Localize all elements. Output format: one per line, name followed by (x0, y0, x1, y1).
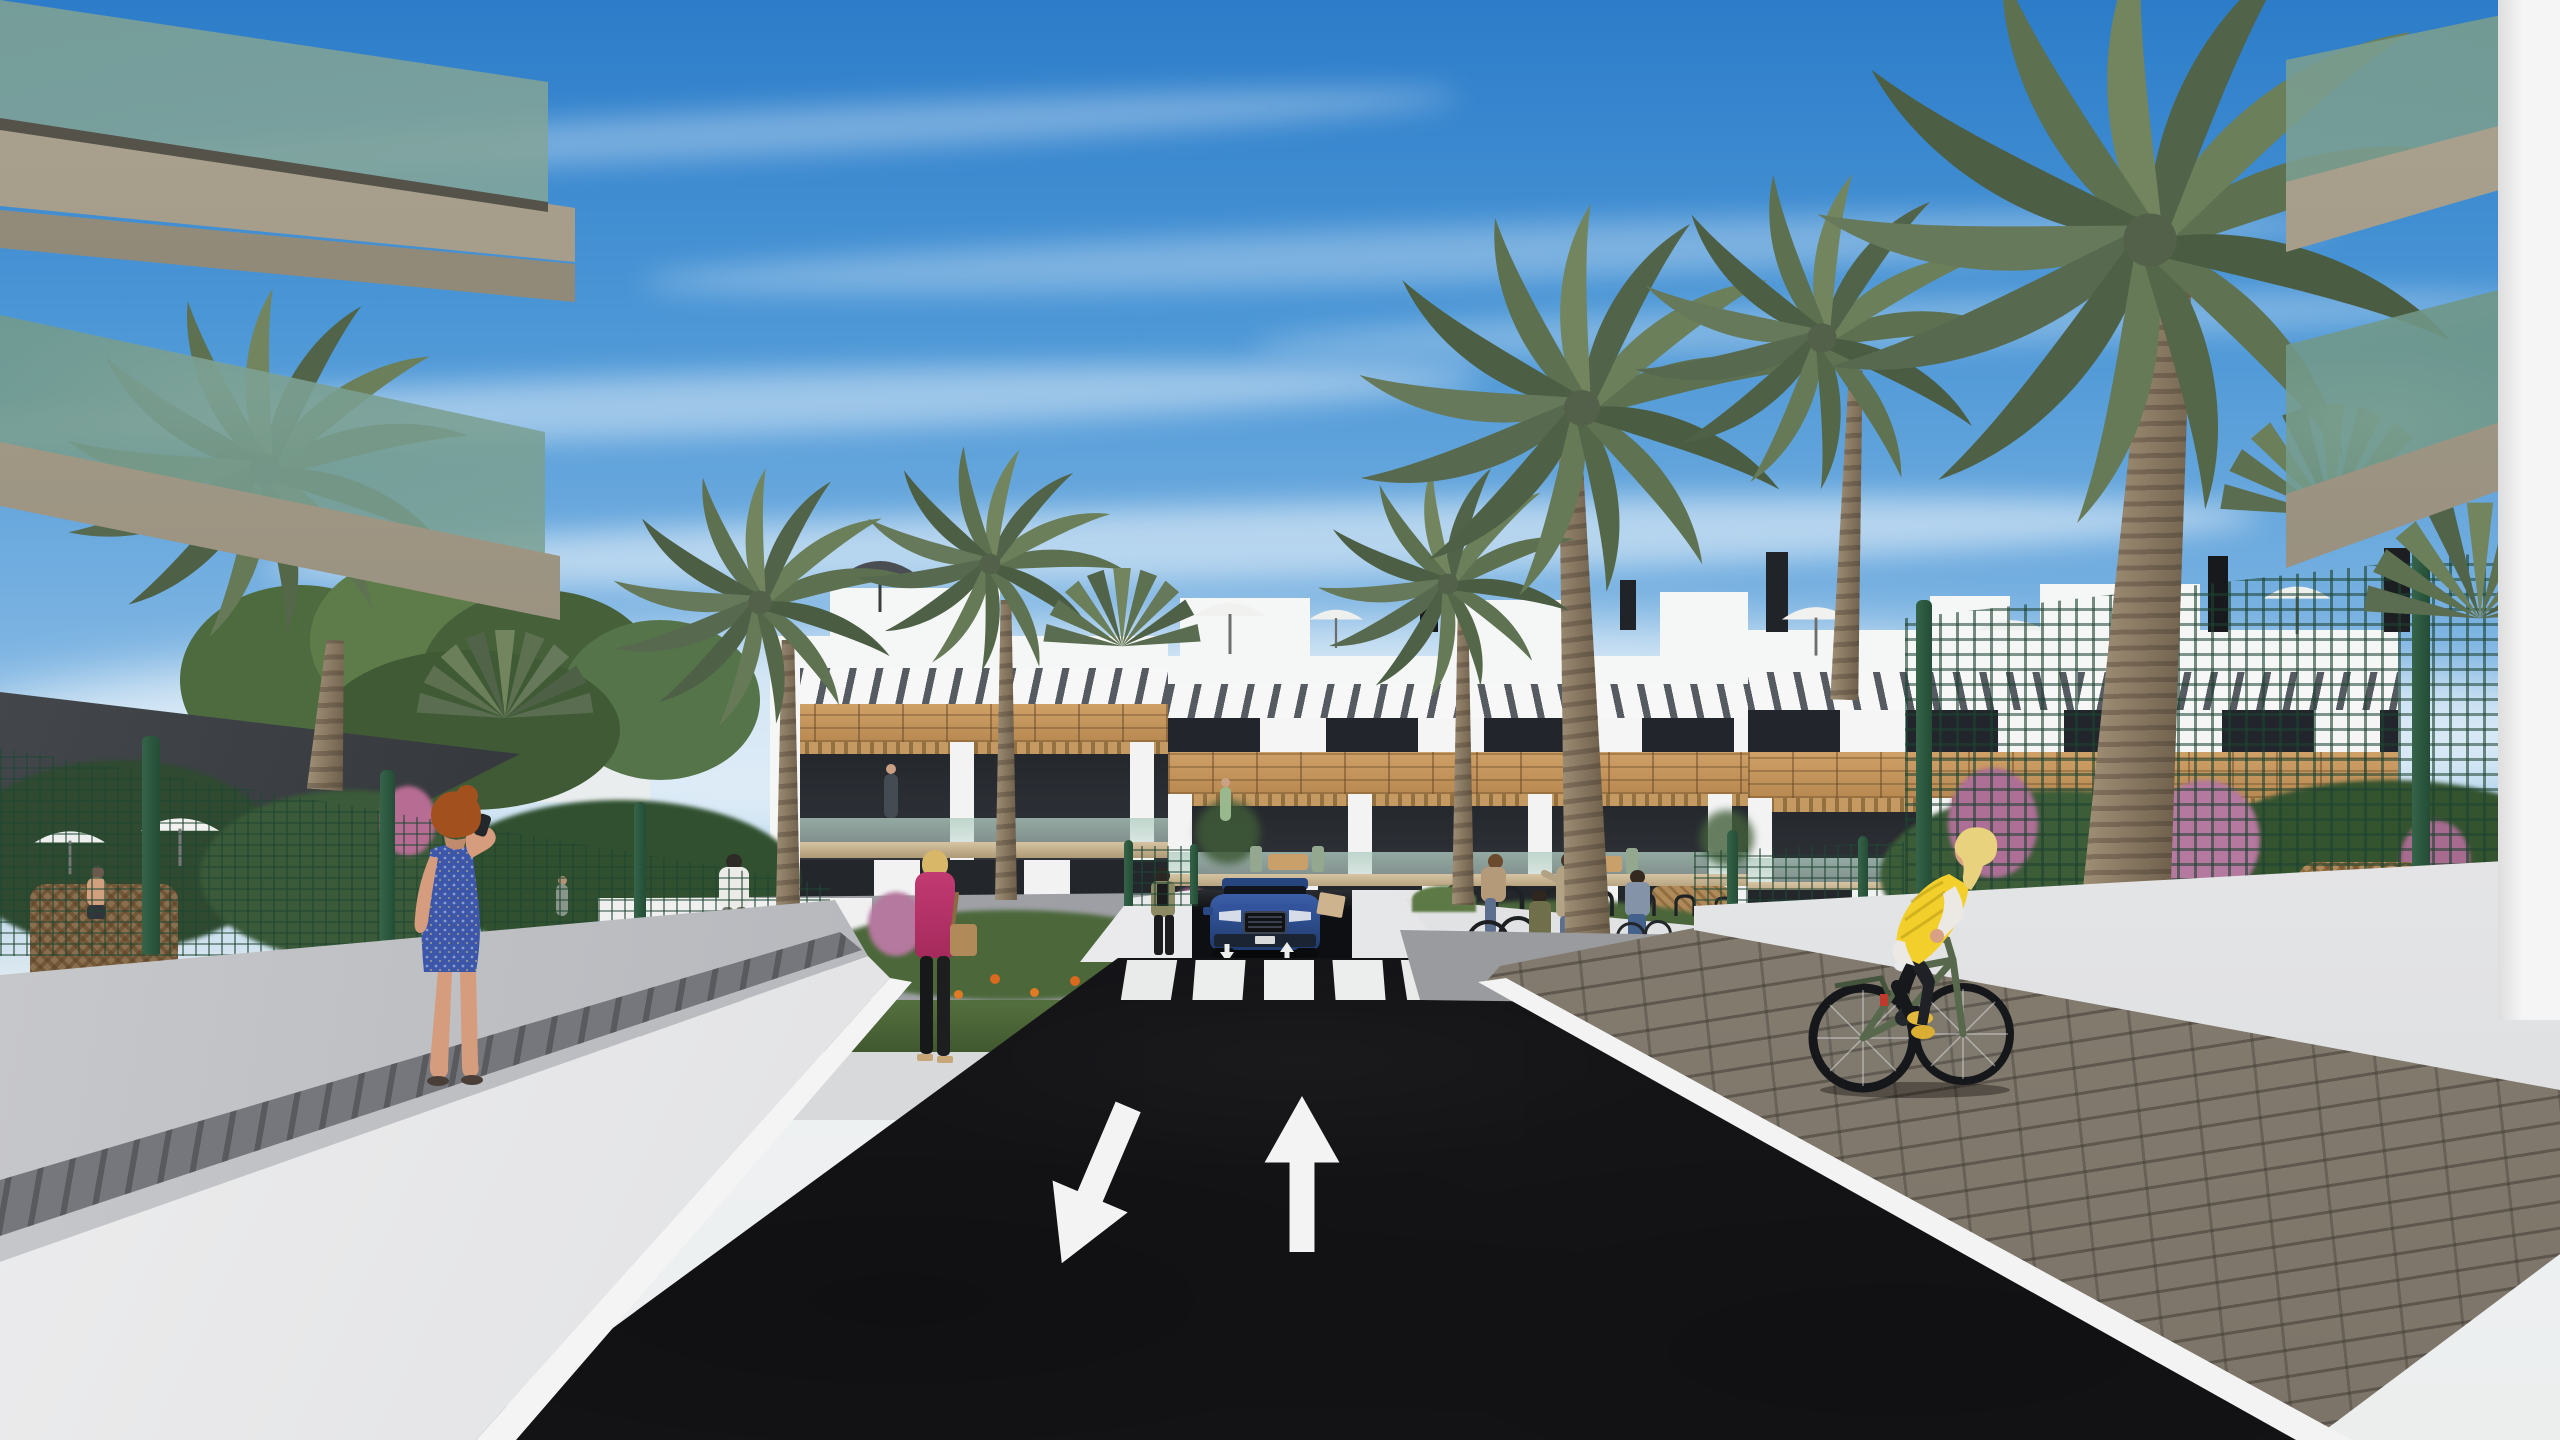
balcony-person (1218, 778, 1234, 826)
fence-ramp-left (1128, 846, 1198, 906)
fan-palm (415, 628, 595, 723)
balcony-table-set (1246, 838, 1336, 878)
cyclist-yellow-vest (1785, 790, 2035, 1100)
fence-post (1190, 844, 1198, 904)
lane-arrow-up-icon (1262, 1096, 1342, 1252)
scene-render (0, 0, 2560, 1440)
foreground-wall-column (2498, 0, 2560, 1020)
pedestrian-magenta-jacket (906, 850, 978, 1072)
fan-palm (1042, 566, 1202, 651)
fence-post (142, 736, 160, 954)
fence-post (1124, 840, 1133, 906)
woman-blue-dress (380, 784, 520, 1104)
ramp-sign (1316, 892, 1345, 918)
parasol-icon (1190, 596, 1270, 656)
palm-crown (840, 408, 1140, 720)
